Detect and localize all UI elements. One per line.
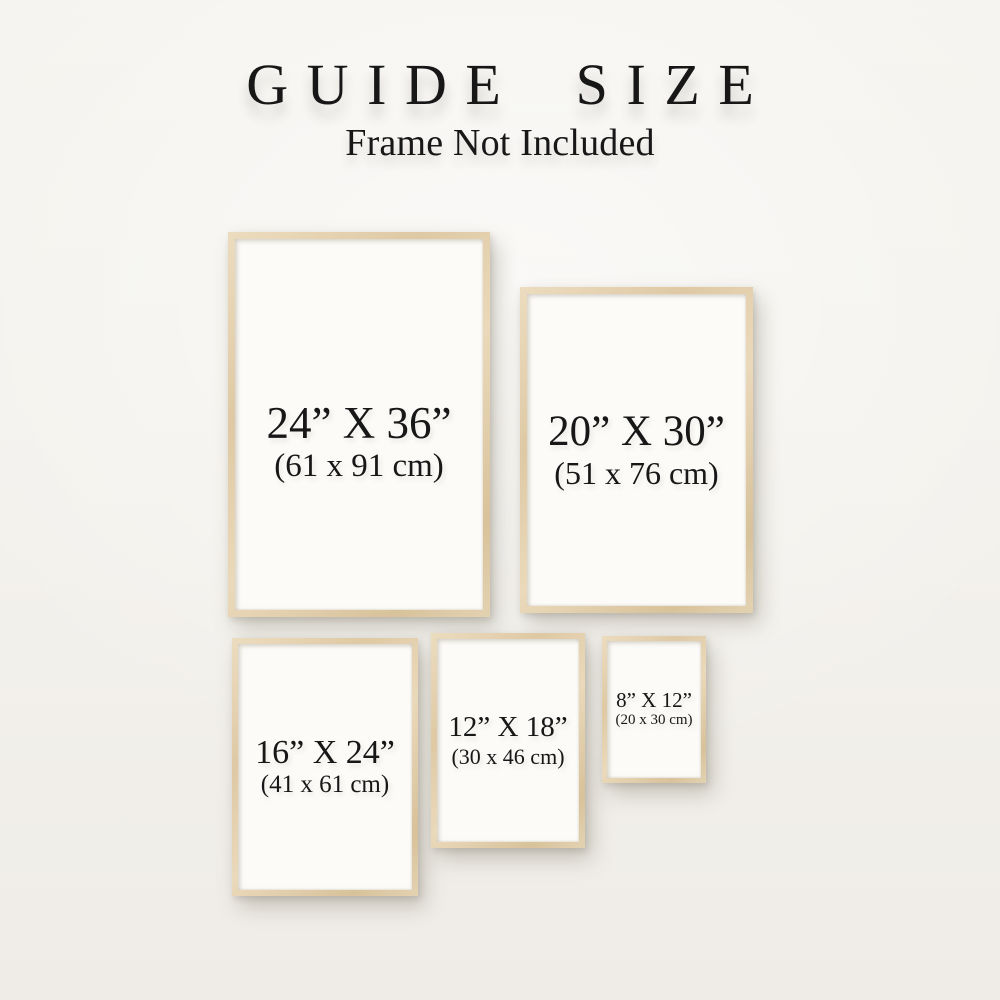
- frame-24x36-size-cm: (61 x 91 cm): [274, 448, 444, 486]
- size-guide-header: GUIDE SIZE Frame Not Included: [0, 56, 1000, 162]
- frame-20x30-size-inches: 20” X 30”: [548, 408, 725, 455]
- frame-16x24-paper: 16” X 24” (41 x 61 cm): [238, 644, 412, 890]
- frame-24x36-size-inches: 24” X 36”: [267, 399, 452, 449]
- frame-24x36-paper: 24” X 36” (61 x 91 cm): [235, 239, 483, 610]
- frame-12x18-paper: 12” X 18” (30 x 46 cm): [437, 639, 579, 842]
- frame-12x18-size-cm: (30 x 46 cm): [451, 744, 564, 769]
- frame-20x30-size-cm: (51 x 76 cm): [554, 455, 718, 492]
- page-subtitle: Frame Not Included: [0, 124, 1000, 162]
- frame-8x12-size-cm: (20 x 30 cm): [615, 712, 692, 729]
- frame-24x36: 24” X 36” (61 x 91 cm): [228, 232, 490, 617]
- frame-12x18: 12” X 18” (30 x 46 cm): [431, 633, 585, 848]
- frame-12x18-size-inches: 12” X 18”: [448, 712, 567, 744]
- page-title: GUIDE SIZE: [0, 56, 1000, 114]
- frame-16x24: 16” X 24” (41 x 61 cm): [232, 638, 418, 896]
- frame-16x24-size-cm: (41 x 61 cm): [261, 771, 389, 800]
- frame-8x12-size-inches: 8” X 12”: [616, 689, 692, 712]
- frame-20x30: 20” X 30” (51 x 76 cm): [520, 287, 753, 613]
- frame-20x30-paper: 20” X 30” (51 x 76 cm): [527, 294, 746, 606]
- frame-8x12: 8” X 12” (20 x 30 cm): [602, 636, 706, 783]
- frame-16x24-size-inches: 16” X 24”: [255, 734, 395, 771]
- frame-8x12-paper: 8” X 12” (20 x 30 cm): [607, 641, 701, 778]
